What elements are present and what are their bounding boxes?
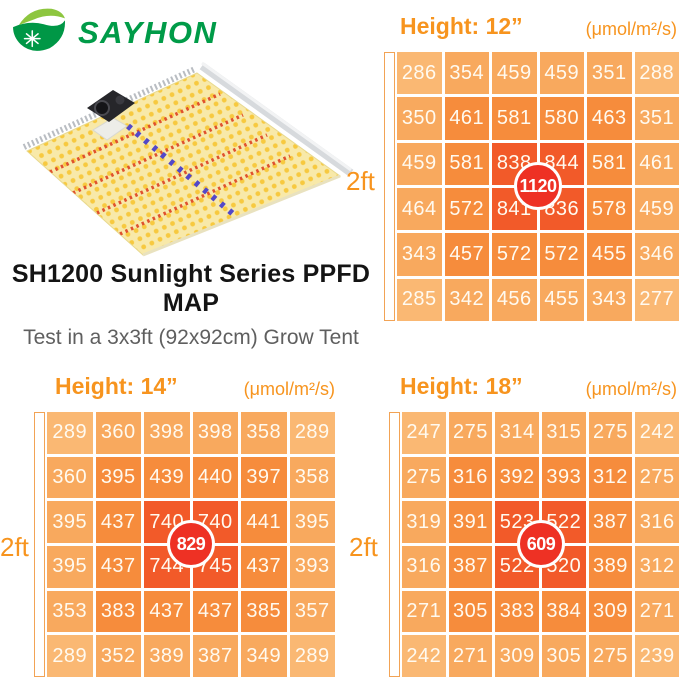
ppfd-cell: 239 bbox=[635, 635, 679, 677]
ppfd-cell: 288 bbox=[635, 52, 679, 94]
test-condition: Test in a 3x3ft (92x92cm) Grow Tent bbox=[2, 326, 380, 350]
ppfd-cell: 578 bbox=[587, 188, 632, 230]
ppfd-cell: 581 bbox=[492, 97, 537, 139]
ppfd-cell: 459 bbox=[635, 188, 679, 230]
span-label-2ft: 2ft bbox=[0, 532, 29, 563]
ppfd-cell: 383 bbox=[495, 591, 539, 633]
ppfd-cell: 461 bbox=[445, 97, 490, 139]
unit-label: (μmol/m²/s) bbox=[586, 379, 677, 400]
ppfd-cell: 351 bbox=[587, 52, 632, 94]
ppfd-cell: 395 bbox=[47, 501, 93, 543]
ppfd-cell: 572 bbox=[540, 233, 585, 275]
ppfd-cell: 277 bbox=[635, 279, 679, 321]
ppfd-cell: 275 bbox=[402, 457, 446, 499]
intro-block: SH1200 Sunlight Series PPFD MAP Test in … bbox=[2, 260, 380, 350]
ppfd-cell: 398 bbox=[144, 412, 190, 454]
ppfd-cell: 393 bbox=[290, 546, 336, 588]
ppfd-cell: 305 bbox=[542, 635, 586, 677]
ppfd-cell: 309 bbox=[495, 635, 539, 677]
map-height-label: Height: 12” bbox=[400, 13, 523, 40]
ppfd-cell: 389 bbox=[144, 635, 190, 677]
ppfd-cell: 289 bbox=[290, 412, 336, 454]
ppfd-cell: 387 bbox=[589, 501, 633, 543]
ppfd-cell: 315 bbox=[542, 412, 586, 454]
ppfd-cell: 437 bbox=[241, 546, 287, 588]
ppfd-cell: 572 bbox=[445, 188, 490, 230]
axis-strip bbox=[34, 412, 45, 677]
ppfd-cell: 312 bbox=[635, 546, 679, 588]
ppfd-cell: 387 bbox=[449, 546, 493, 588]
ppfd-cell: 389 bbox=[589, 546, 633, 588]
ppfd-cell: 285 bbox=[397, 279, 442, 321]
peak-value: 1120 bbox=[519, 176, 556, 197]
ppfd-cell: 360 bbox=[47, 457, 93, 499]
ppfd-cell: 464 bbox=[397, 188, 442, 230]
ppfd-cell: 289 bbox=[290, 635, 336, 677]
ppfd-cell: 242 bbox=[402, 635, 446, 677]
ppfd-cell: 350 bbox=[397, 97, 442, 139]
ppfd-cell: 271 bbox=[449, 635, 493, 677]
ppfd-cell: 346 bbox=[635, 233, 679, 275]
ppfd-cell: 572 bbox=[492, 233, 537, 275]
ppfd-cell: 437 bbox=[96, 546, 142, 588]
ppfd-cell: 385 bbox=[241, 591, 287, 633]
ppfd-cell: 275 bbox=[589, 412, 633, 454]
ppfd-cell: 319 bbox=[402, 501, 446, 543]
ppfd-cell: 459 bbox=[397, 143, 442, 185]
ppfd-cell: 581 bbox=[587, 143, 632, 185]
ppfd-cell: 343 bbox=[397, 233, 442, 275]
peak-value-badge: 829 bbox=[167, 520, 215, 568]
ppfd-cell: 275 bbox=[635, 457, 679, 499]
brand-name: SAYHON bbox=[78, 11, 217, 48]
ppfd-cell: 247 bbox=[402, 412, 446, 454]
ppfd-cell: 357 bbox=[290, 591, 336, 633]
ppfd-cell: 392 bbox=[495, 457, 539, 499]
ppfd-cell: 316 bbox=[635, 501, 679, 543]
ppfd-cell: 354 bbox=[445, 52, 490, 94]
span-label-2ft: 2ft bbox=[349, 532, 378, 563]
ppfd-cell: 395 bbox=[96, 457, 142, 499]
ppfd-cell: 455 bbox=[540, 279, 585, 321]
ppfd-cell: 352 bbox=[96, 635, 142, 677]
ppfd-cell: 437 bbox=[193, 591, 239, 633]
ppfd-cell: 398 bbox=[193, 412, 239, 454]
ppfd-cell: 393 bbox=[542, 457, 586, 499]
ppfd-cell: 353 bbox=[47, 591, 93, 633]
ppfd-cell: 360 bbox=[96, 412, 142, 454]
ppfd-cell: 580 bbox=[540, 97, 585, 139]
span-label-2ft: 2ft bbox=[346, 166, 375, 197]
ppfd-cell: 342 bbox=[445, 279, 490, 321]
ppfd-cell: 358 bbox=[290, 457, 336, 499]
ppfd-cell: 581 bbox=[445, 143, 490, 185]
product-title: SH1200 Sunlight Series PPFD MAP bbox=[2, 260, 380, 318]
ppfd-cell: 383 bbox=[96, 591, 142, 633]
leaf-globe-icon bbox=[8, 4, 70, 54]
unit-label: (μmol/m²/s) bbox=[586, 19, 677, 40]
ppfd-cell: 275 bbox=[449, 412, 493, 454]
ppfd-cell: 395 bbox=[290, 501, 336, 543]
ppfd-cell: 305 bbox=[449, 591, 493, 633]
ppfd-cell: 391 bbox=[449, 501, 493, 543]
ppfd-cell: 440 bbox=[193, 457, 239, 499]
ppfd-cell: 439 bbox=[144, 457, 190, 499]
ppfd-cell: 437 bbox=[96, 501, 142, 543]
dimmer-knob bbox=[95, 101, 109, 115]
ppfd-cell: 351 bbox=[635, 97, 679, 139]
ppfd-cell: 275 bbox=[589, 635, 633, 677]
ppfd-cell: 384 bbox=[542, 591, 586, 633]
ppfd-cell: 437 bbox=[144, 591, 190, 633]
peak-value: 609 bbox=[527, 534, 556, 555]
ppfd-cell: 459 bbox=[540, 52, 585, 94]
ppfd-cell: 242 bbox=[635, 412, 679, 454]
axis-strip bbox=[384, 52, 395, 321]
peak-value: 829 bbox=[177, 534, 206, 555]
ppfd-cell: 289 bbox=[47, 412, 93, 454]
ppfd-cell: 286 bbox=[397, 52, 442, 94]
peak-value-badge: 1120 bbox=[514, 162, 562, 210]
map-height-label: Height: 14” bbox=[55, 373, 178, 400]
ppfd-cell: 289 bbox=[47, 635, 93, 677]
ppfd-cell: 395 bbox=[47, 546, 93, 588]
ppfd-cell: 312 bbox=[589, 457, 633, 499]
ppfd-cell: 463 bbox=[587, 97, 632, 139]
ppfd-cell: 349 bbox=[241, 635, 287, 677]
ppfd-cell: 456 bbox=[492, 279, 537, 321]
unit-label: (μmol/m²/s) bbox=[244, 379, 335, 400]
ppfd-cell: 271 bbox=[635, 591, 679, 633]
ppfd-cell: 461 bbox=[635, 143, 679, 185]
ppfd-cell: 457 bbox=[445, 233, 490, 275]
ppfd-cell: 309 bbox=[589, 591, 633, 633]
ppfd-infographic: SAYHON bbox=[0, 0, 679, 679]
ppfd-cell: 316 bbox=[402, 546, 446, 588]
brand-logo: SAYHON bbox=[8, 4, 217, 54]
ppfd-cell: 459 bbox=[492, 52, 537, 94]
ppfd-cell: 343 bbox=[587, 279, 632, 321]
map-height-label: Height: 18” bbox=[400, 373, 523, 400]
ppfd-cell: 314 bbox=[495, 412, 539, 454]
ppfd-cell: 387 bbox=[193, 635, 239, 677]
led-board bbox=[27, 73, 340, 255]
ppfd-cell: 271 bbox=[402, 591, 446, 633]
ppfd-cell: 316 bbox=[449, 457, 493, 499]
grow-light-image bbox=[10, 56, 355, 261]
ppfd-cell: 455 bbox=[587, 233, 632, 275]
axis-strip bbox=[389, 412, 400, 677]
peak-value-badge: 609 bbox=[517, 520, 565, 568]
ppfd-cell: 358 bbox=[241, 412, 287, 454]
ppfd-cell: 397 bbox=[241, 457, 287, 499]
ppfd-cell: 441 bbox=[241, 501, 287, 543]
